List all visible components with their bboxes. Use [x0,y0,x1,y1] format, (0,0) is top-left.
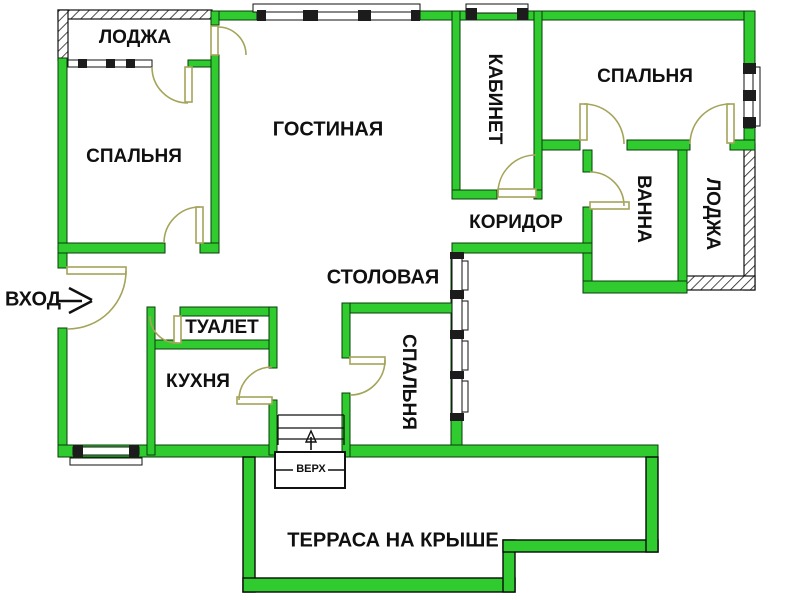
bedroom-top-right-window [743,63,760,128]
bedroom-left-door [164,207,203,243]
bathroom-door [590,172,629,209]
floor-plan-drawing [0,0,800,600]
room-label-toilet: ТУАЛЕТ [185,317,259,339]
room-label-living-room: ГОСТИНАЯ [273,119,383,142]
room-label-dining-room: СТОЛОВАЯ [327,267,440,290]
room-label-study: КАБИНЕТ [483,54,505,145]
loggia-right-door [690,104,734,144]
stairs-up-arrow [306,431,316,450]
loggia-tl-bedroom-door [152,67,192,103]
living-room-window [253,4,420,21]
entrance-door [67,267,126,329]
hall-window [70,445,142,465]
room-label-kitchen: КУХНЯ [166,371,230,393]
room-label-bedroom-left: СПАЛЬНЯ [86,146,182,168]
kitchen-door [237,367,272,404]
room-label-bathroom: ВАННА [632,175,654,243]
stairs-up-label: ВЕРХ [296,463,326,475]
room-label-bedroom-bottom: СПАЛЬНЯ [397,334,419,430]
bedroom-top-right-door [580,104,624,144]
entrance-arrow [57,288,92,313]
staircase [275,415,345,488]
room-label-roof-terrace: ТЕРРАСА НА КРЫШЕ [287,530,498,553]
loggia-bedroom-window [68,59,152,68]
room-label-corridor: КОРИДОР [469,212,563,234]
entrance-label: ВХОД [5,289,61,312]
study-door [498,155,536,197]
floor-plan-canvas: ЛОДЖА СПАЛЬНЯ ГОСТИНАЯ КАБИНЕТ СПАЛЬНЯ В… [0,0,800,600]
room-label-loggia-top-left: ЛОДЖА [99,27,171,49]
loggia-tl-living-door [211,26,246,55]
dining-east-windows [450,252,468,421]
room-label-loggia-right: ЛОДЖА [701,178,723,250]
bedroom-bottom-door [350,357,385,395]
room-label-bedroom-top-right: СПАЛЬНЯ [597,66,693,88]
